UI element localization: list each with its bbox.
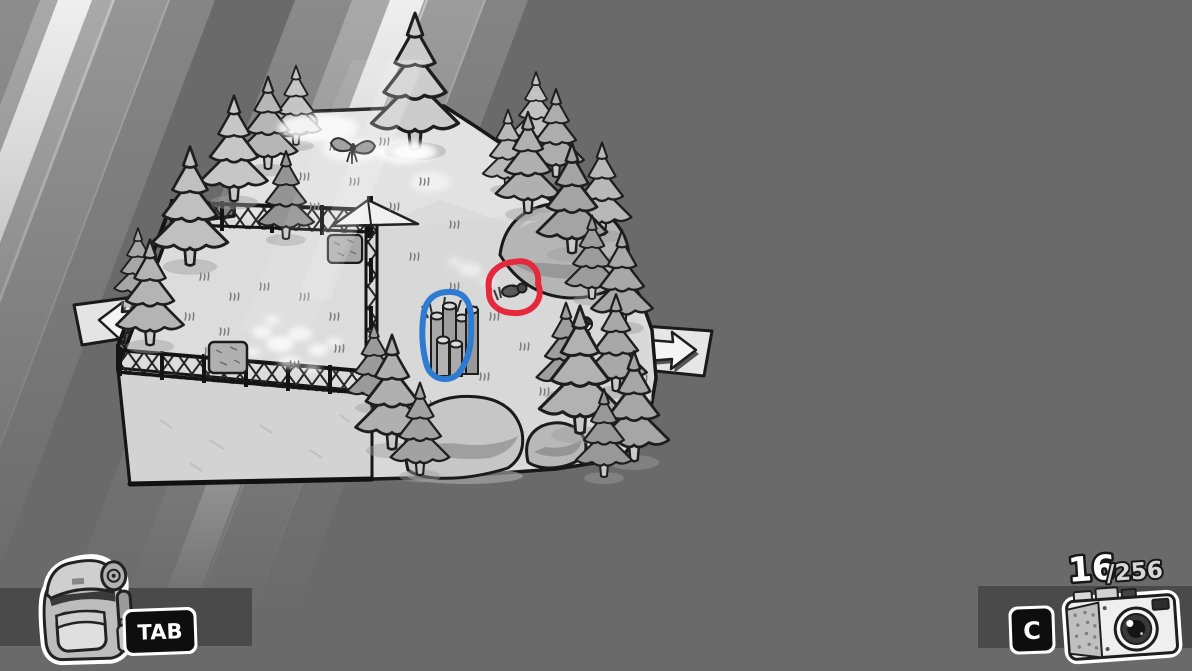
game-screen: TAB 16 /256 C — [0, 0, 1192, 671]
backpack-icon[interactable] — [40, 557, 134, 663]
game-canvas: TAB 16 /256 C — [0, 0, 1192, 671]
c-key-label: C — [1023, 617, 1042, 646]
film-counter: 16 /256 — [1067, 544, 1164, 590]
hay-bale — [209, 342, 247, 373]
camera-icon[interactable] — [1065, 583, 1178, 659]
c-key[interactable]: C — [1008, 605, 1056, 655]
film-counter-total: /256 — [1106, 557, 1164, 587]
tab-key[interactable]: TAB — [122, 607, 198, 657]
tab-key-label: TAB — [137, 619, 183, 645]
